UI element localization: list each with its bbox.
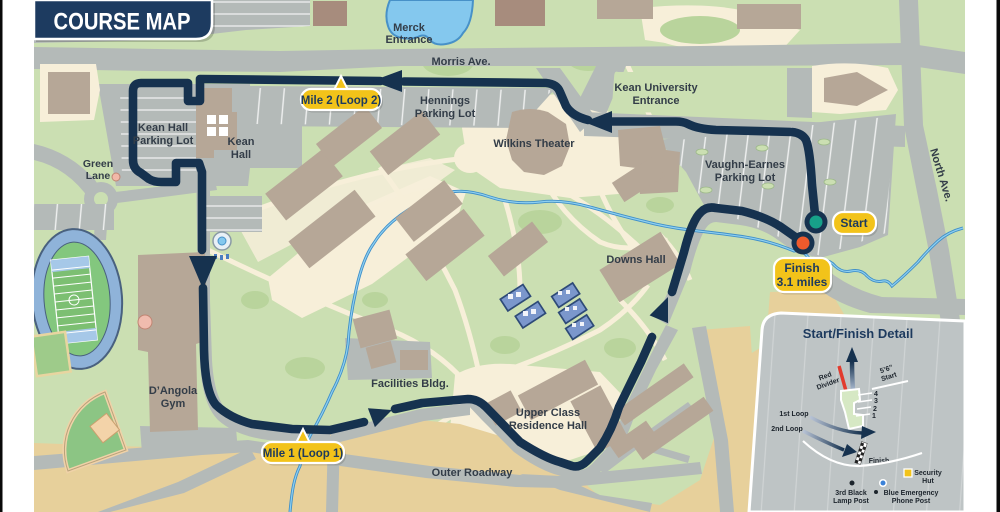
svg-text:Wilkins Theater: Wilkins Theater — [493, 138, 575, 150]
svg-text:Facilities Bldg.: Facilities Bldg. — [371, 378, 449, 390]
svg-text:Outer Roadway: Outer Roadway — [432, 467, 514, 479]
svg-text:3rd Black: 3rd Black — [835, 490, 867, 497]
svg-text:Phone Post: Phone Post — [892, 498, 931, 505]
svg-text:Parking Lot: Parking Lot — [415, 108, 476, 120]
svg-text:Entrance: Entrance — [385, 34, 432, 46]
svg-text:Upper Class: Upper Class — [516, 407, 580, 419]
svg-text:1: 1 — [872, 413, 876, 420]
svg-text:3: 3 — [874, 398, 878, 405]
svg-text:2: 2 — [873, 406, 877, 413]
svg-text:Lane: Lane — [86, 170, 111, 182]
svg-text:D’Angola: D’Angola — [149, 385, 198, 397]
svg-text:Blue Emergency: Blue Emergency — [884, 490, 939, 497]
svg-text:Kean: Kean — [228, 136, 255, 148]
svg-text:Parking Lot: Parking Lot — [133, 135, 194, 147]
svg-text:1st Loop: 1st Loop — [779, 411, 808, 418]
svg-text:4: 4 — [874, 391, 878, 398]
svg-text:Downs Hall: Downs Hall — [606, 254, 665, 266]
svg-text:Residence Hall: Residence Hall — [509, 420, 587, 432]
svg-text:Green: Green — [83, 158, 113, 170]
svg-text:Hut: Hut — [922, 478, 934, 485]
svg-text:Finish: Finish — [784, 261, 819, 275]
svg-text:Start/Finish Detail: Start/Finish Detail — [803, 326, 914, 341]
svg-text:Gym: Gym — [161, 398, 186, 410]
svg-text:Kean University: Kean University — [614, 82, 698, 94]
svg-text:Start: Start — [840, 216, 867, 230]
svg-text:Merck: Merck — [393, 22, 426, 34]
svg-text:3.1 miles: 3.1 miles — [777, 275, 828, 289]
svg-text:Lamp Post: Lamp Post — [833, 498, 869, 505]
svg-text:Mile 1 (Loop 1): Mile 1 (Loop 1) — [263, 448, 344, 460]
svg-text:COURSE MAP: COURSE MAP — [54, 9, 191, 36]
svg-text:Vaughn-Earnes: Vaughn-Earnes — [705, 159, 785, 171]
svg-text:Hall: Hall — [231, 149, 251, 161]
svg-text:Morris Ave.: Morris Ave. — [431, 56, 490, 68]
svg-text:Hennings: Hennings — [420, 95, 470, 107]
svg-text:Parking Lot: Parking Lot — [715, 172, 776, 184]
svg-text:Kean Hall: Kean Hall — [138, 122, 188, 134]
svg-text:Entrance: Entrance — [632, 95, 679, 107]
svg-text:Security: Security — [914, 470, 942, 477]
svg-text:Mile 2 (Loop 2): Mile 2 (Loop 2) — [301, 95, 382, 107]
svg-text:2nd Loop: 2nd Loop — [771, 426, 803, 433]
